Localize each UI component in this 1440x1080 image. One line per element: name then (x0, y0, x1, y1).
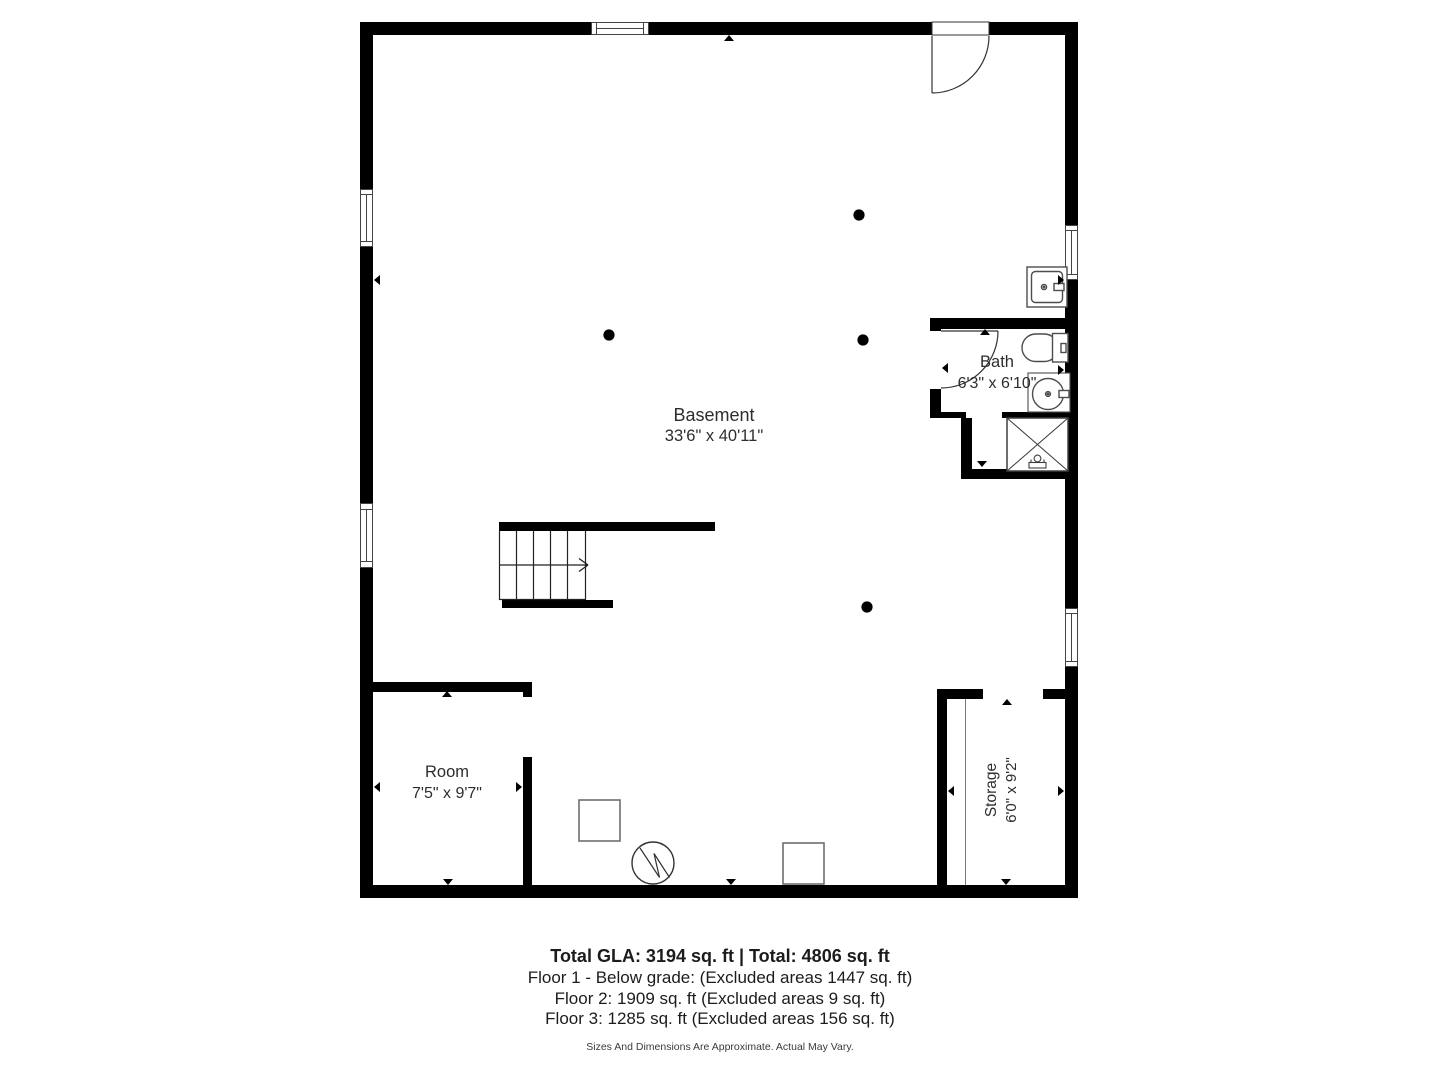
doors (932, 36, 998, 388)
room-name: Basement (564, 404, 864, 426)
room-name: Storage (981, 690, 1002, 890)
window-top (592, 23, 649, 35)
entry-door-swing-arc (932, 36, 989, 93)
stairs (500, 531, 589, 600)
entry-door (932, 36, 989, 93)
window-right-2 (1066, 609, 1078, 667)
utility-sink (1027, 267, 1067, 307)
room-dimensions: 6'3" x 6'10" (897, 373, 1097, 394)
equipment-box (783, 843, 824, 884)
support-column (857, 334, 868, 345)
storage-top-wall-right (1043, 689, 1078, 699)
windows (361, 23, 1078, 667)
disclaimer-text: Sizes And Dimensions Are Approximate. Ac… (0, 1041, 1440, 1053)
furnace (579, 800, 620, 841)
dim-arrow-down (977, 461, 987, 467)
window-left-1 (361, 190, 373, 247)
stairs-upper-wall (499, 522, 715, 531)
storage-label: Storage 6'0" x 9'2" (981, 690, 1025, 890)
floor-plan-drawing (0, 0, 1440, 1080)
room-top-wall (373, 682, 532, 692)
room-door-opening (523, 697, 532, 757)
support-column (603, 329, 614, 340)
stairs-direction-arrow (500, 559, 588, 572)
dimension-arrows (374, 35, 1064, 885)
floor-plan-page: Basement 33'6" x 40'11" Bath 6'3" x 6'10… (0, 0, 1440, 1080)
room-dimensions: 6'0" x 9'2" (1002, 690, 1022, 890)
floor3-line: Floor 3: 1285 sq. ft (Excluded areas 156… (0, 1009, 1440, 1030)
room-name: Room (347, 762, 547, 783)
support-column (861, 601, 872, 612)
dim-arrow-right (1058, 786, 1064, 796)
room-dimensions: 33'6" x 40'11" (564, 426, 864, 447)
wall-bottom (360, 885, 1078, 898)
window-left-2 (361, 504, 373, 568)
support-column (853, 209, 864, 220)
room-dimensions: 7'5" x 9'7" (347, 783, 547, 804)
bath-mid-wall-left (930, 412, 966, 418)
bath-top-wall (930, 318, 1078, 329)
basement-equipment (579, 800, 824, 884)
dim-arrow-up (980, 329, 990, 335)
bath-label: Bath 6'3" x 6'10" (897, 352, 1097, 394)
bath-alcove-left-wall (961, 418, 972, 472)
room-label: Room 7'5" x 9'7" (347, 762, 547, 804)
floor2-line: Floor 2: 1909 sq. ft (Excluded areas 9 s… (0, 989, 1440, 1010)
dim-arrow-down (726, 879, 736, 885)
basement-label: Basement 33'6" x 40'11" (564, 404, 864, 447)
entry-door-opening (932, 22, 989, 35)
storage-left-wall (937, 689, 947, 898)
dim-arrow-up (724, 35, 734, 41)
water-heater (632, 842, 674, 884)
dim-arrow-left (948, 786, 954, 796)
total-gla-line: Total GLA: 3194 sq. ft | Total: 4806 sq.… (0, 945, 1440, 967)
dim-arrow-down (443, 879, 453, 885)
floor1-line: Floor 1 - Below grade: (Excluded areas 1… (0, 968, 1440, 989)
dim-arrow-left (374, 275, 380, 285)
stairs-lower-wall (502, 600, 613, 608)
shower (1007, 418, 1068, 471)
area-summary: Total GLA: 3194 sq. ft | Total: 4806 sq.… (0, 945, 1440, 1053)
bath-mid-wall-right (1002, 412, 1078, 418)
room-name: Bath (897, 352, 1097, 373)
